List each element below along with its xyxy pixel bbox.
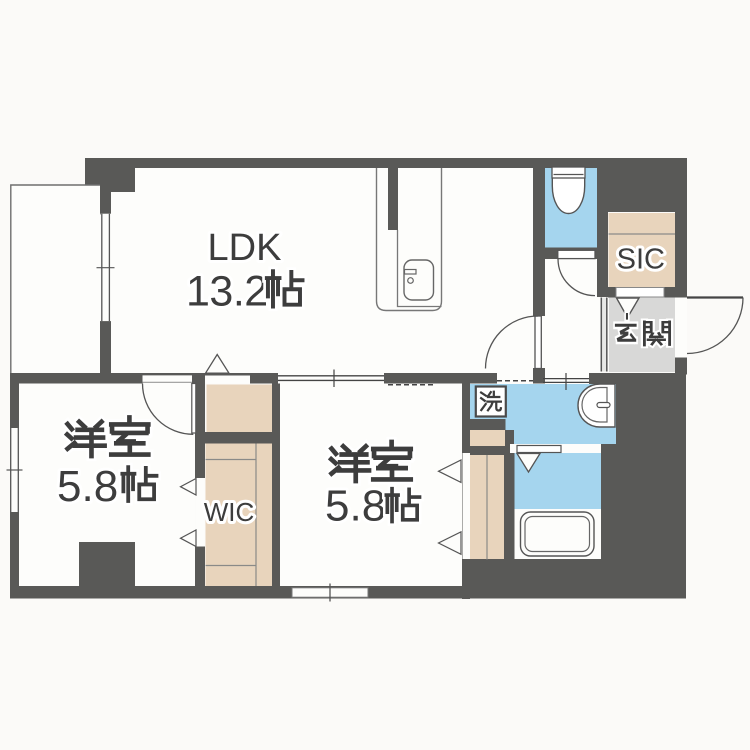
svg-text:LDK: LDK xyxy=(208,227,282,269)
svg-text:WIC: WIC xyxy=(204,497,255,527)
svg-text:5.8: 5.8 xyxy=(325,482,386,531)
svg-text:5.8: 5.8 xyxy=(57,462,118,511)
svg-text:13.2: 13.2 xyxy=(186,268,268,316)
svg-text:SIC: SIC xyxy=(617,244,665,276)
